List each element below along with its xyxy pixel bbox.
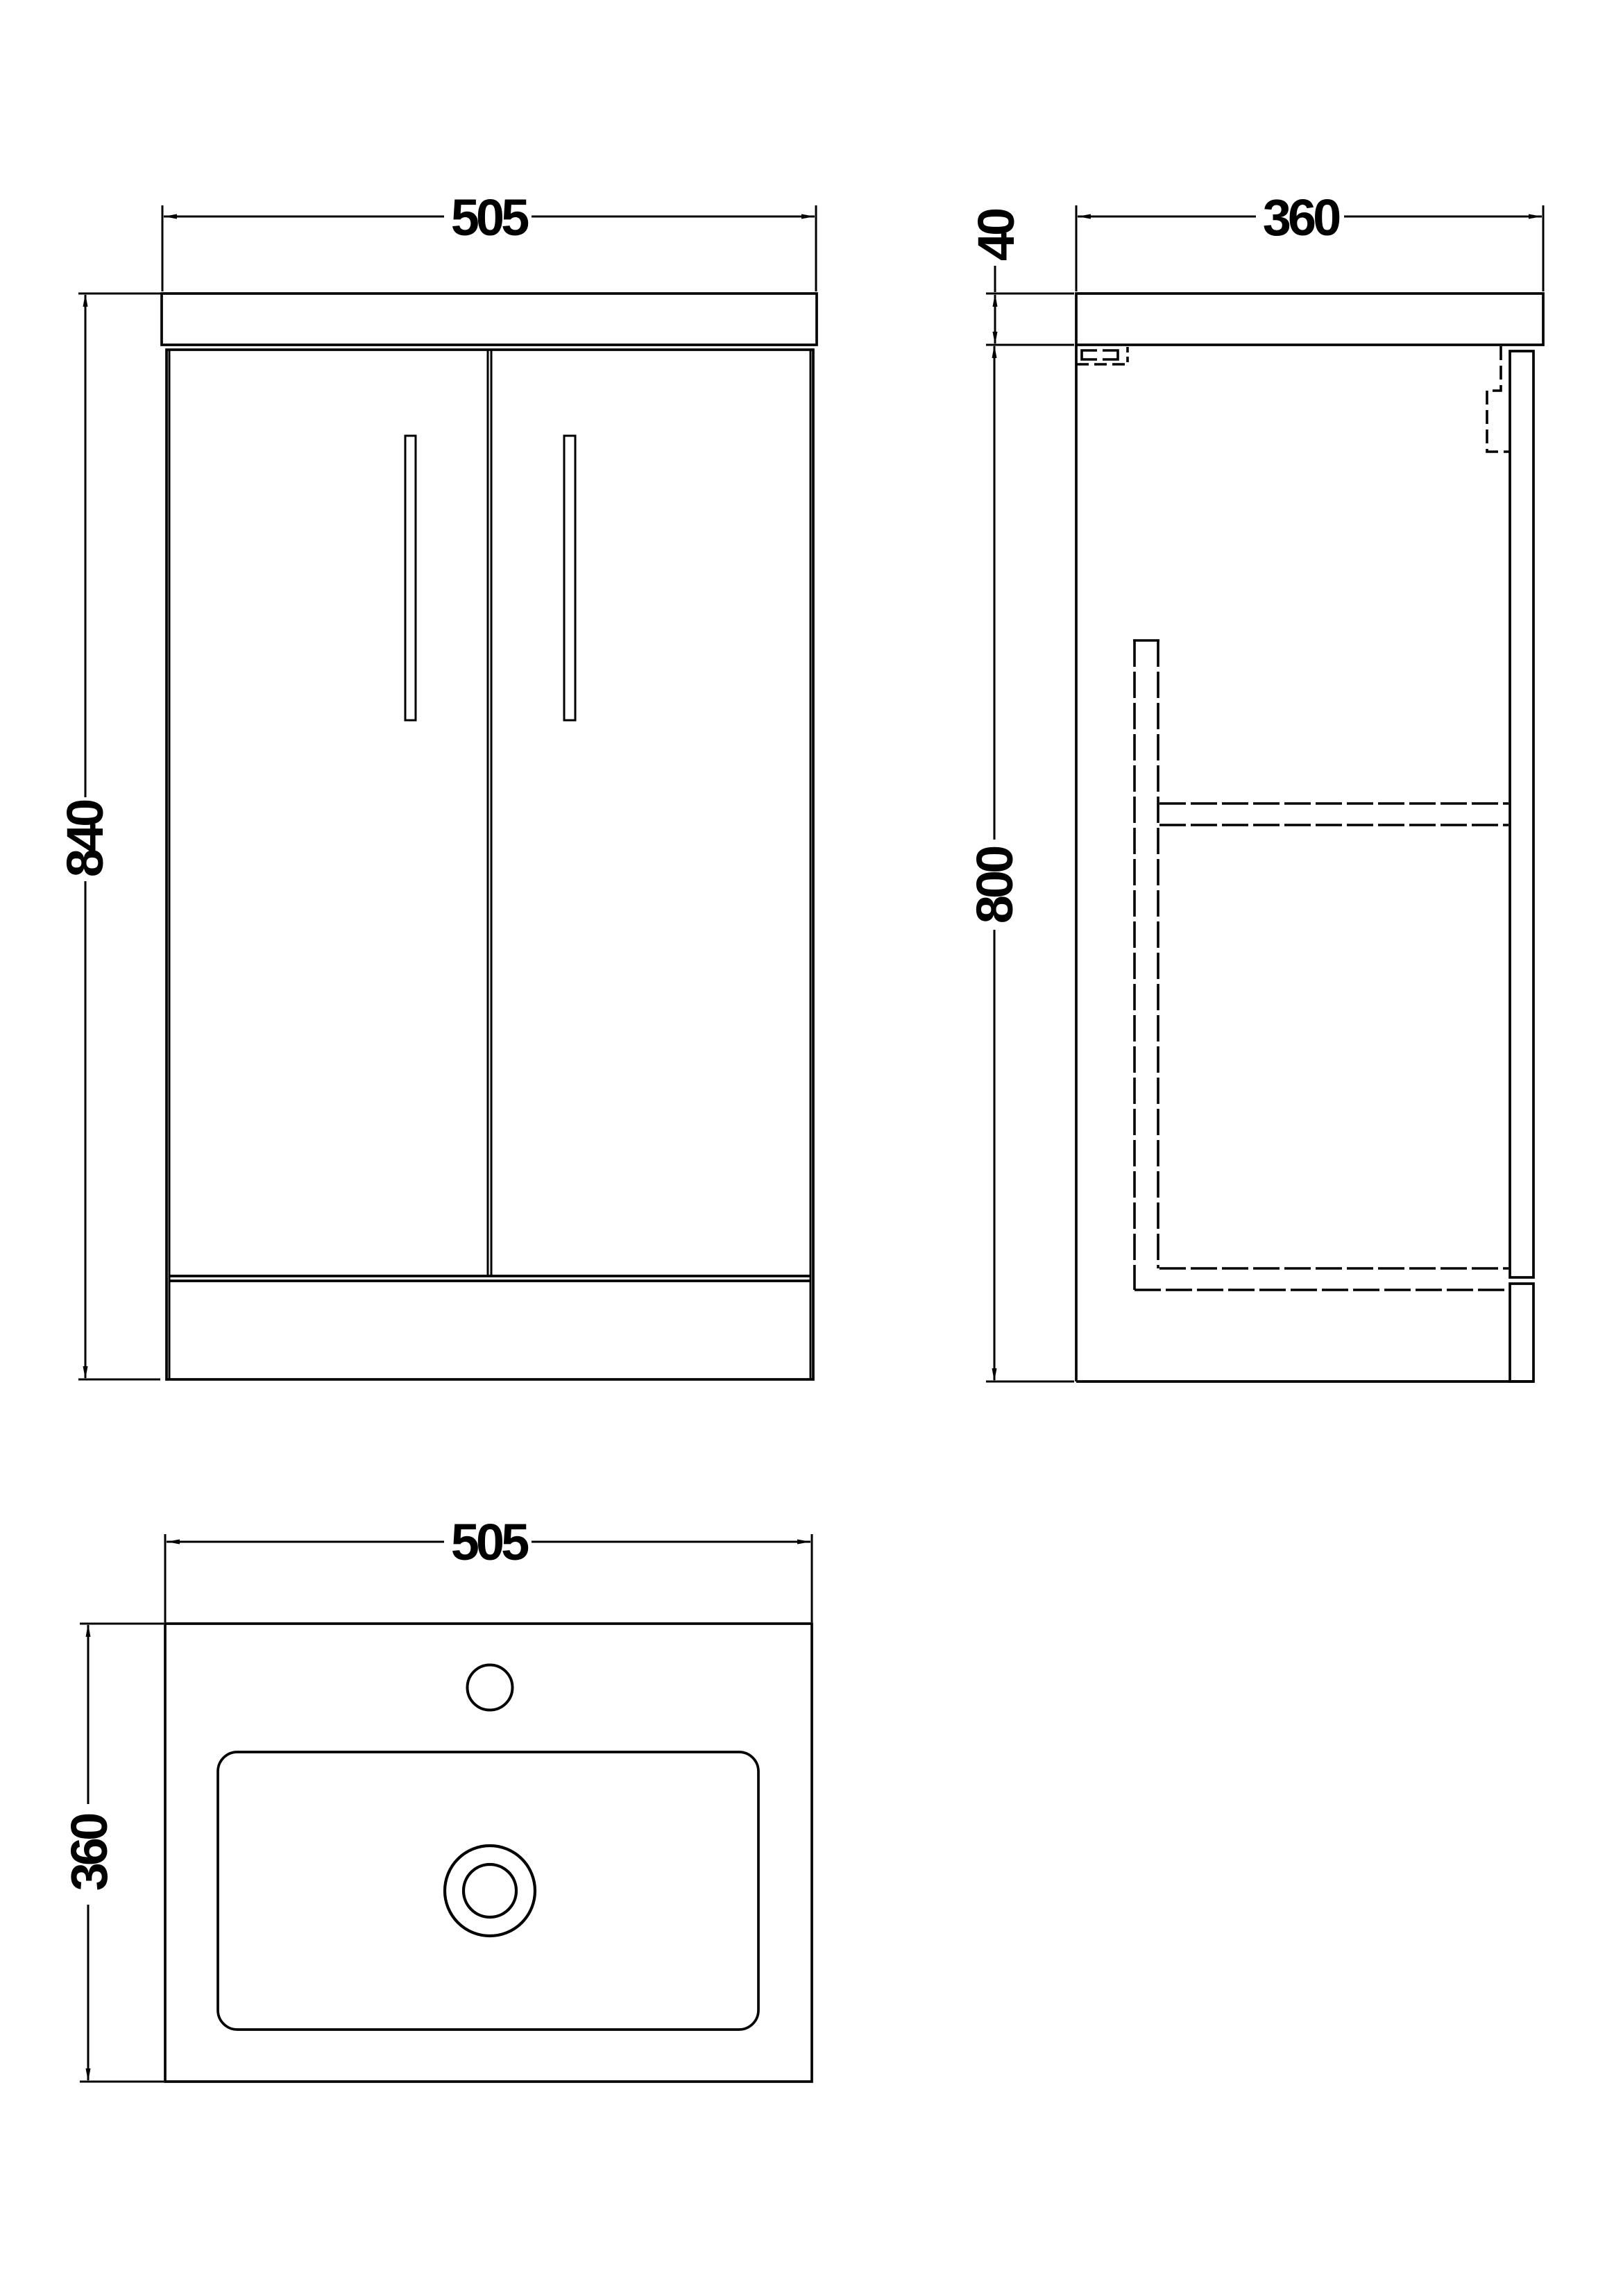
svg-text:840: 840 xyxy=(56,800,114,877)
svg-text:360: 360 xyxy=(1263,189,1340,246)
svg-text:505: 505 xyxy=(451,1513,529,1571)
svg-text:800: 800 xyxy=(966,847,1023,924)
svg-text:360: 360 xyxy=(60,1814,118,1891)
svg-text:505: 505 xyxy=(451,189,529,246)
svg-text:40: 40 xyxy=(967,209,1025,261)
